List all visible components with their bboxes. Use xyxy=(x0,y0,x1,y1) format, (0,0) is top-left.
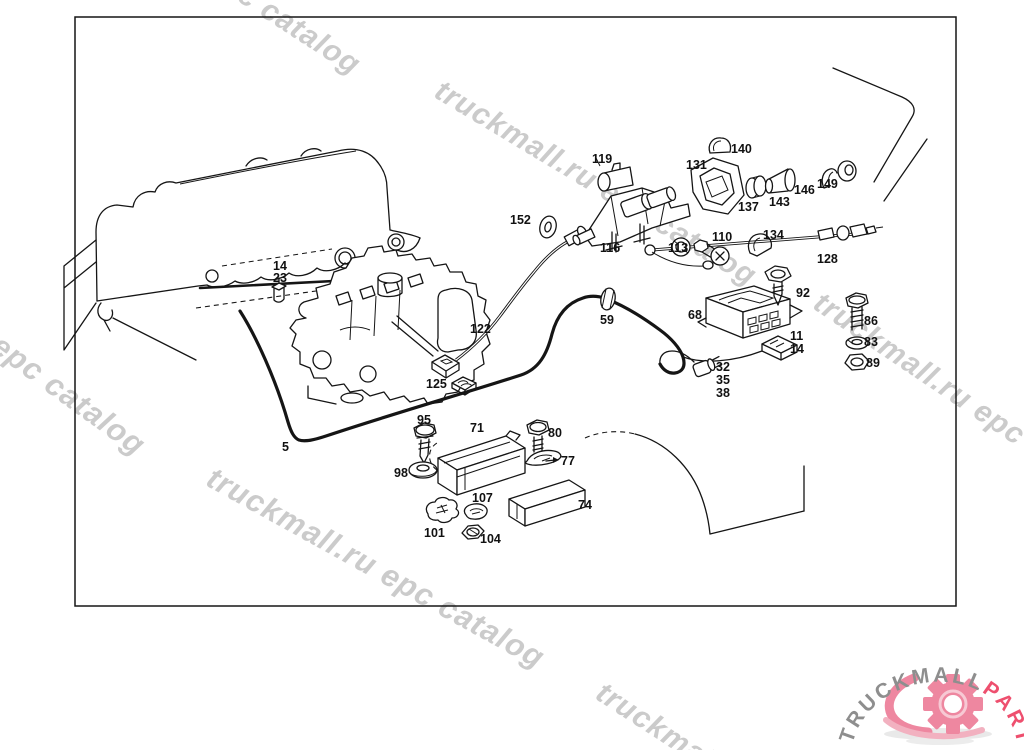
ring-149 xyxy=(838,161,856,181)
part-label-35: 35 xyxy=(716,373,730,387)
catalog-page: c catalogtruckmall.ru epc catalogtruckma… xyxy=(0,0,1024,750)
spring-nut-101 xyxy=(426,498,458,523)
bushing-137 xyxy=(746,176,766,198)
body-outline-fender xyxy=(585,432,804,534)
part-label-146: 146 xyxy=(794,183,815,197)
part-label-119: 119 xyxy=(592,152,612,166)
bolt-80 xyxy=(527,420,549,452)
box-74 xyxy=(509,480,585,526)
brand-logo: TRUCKMALLPARTS xyxy=(0,0,1024,748)
part-label-59: 59 xyxy=(600,313,614,327)
part-label-140: 140 xyxy=(731,142,752,156)
part-label-128: 128 xyxy=(817,252,838,266)
part-label-149: 149 xyxy=(817,177,838,191)
logo-text-parts: PARTS xyxy=(0,0,1024,747)
part-label-116: 116 xyxy=(600,241,620,255)
relay-68 xyxy=(698,286,802,338)
part-label-5: 5 xyxy=(282,440,289,454)
part-label-74: 74 xyxy=(578,498,592,512)
part-label-107: 107 xyxy=(472,491,493,505)
part-label-83: 83 xyxy=(864,335,878,349)
part-label-131: 131 xyxy=(686,158,707,172)
part-label-122: 122 xyxy=(470,322,491,336)
part-label-98: 98 xyxy=(394,466,408,480)
clip-77 xyxy=(526,450,561,465)
part-label-125: 125 xyxy=(426,377,447,391)
part-label-77: 77 xyxy=(561,454,575,468)
part-label-86: 86 xyxy=(864,314,878,328)
part-label-71: 71 xyxy=(470,421,484,435)
part-label-143: 143 xyxy=(769,195,790,209)
parts-diagram: 1191401311371431461491521161131101341289… xyxy=(0,0,1024,750)
part-label-38: 38 xyxy=(716,386,730,400)
part-label-137: 137 xyxy=(738,200,759,214)
part-label-101: 101 xyxy=(424,526,445,540)
logo-text: TRUCKMALLPARTS xyxy=(0,0,1024,747)
screw-95 xyxy=(414,423,436,463)
part-label-68: 68 xyxy=(688,308,702,322)
bracket-71 xyxy=(430,431,526,495)
clip-107 xyxy=(464,504,487,519)
part-label-104: 104 xyxy=(480,532,501,546)
washer-98 xyxy=(409,462,437,478)
part-label-95: 95 xyxy=(417,413,431,427)
part-label-32: 32 xyxy=(716,360,730,374)
part-label-113: 113 xyxy=(668,241,688,255)
part-label-110: 110 xyxy=(712,230,732,244)
part-label-152: 152 xyxy=(510,213,531,227)
part-label-14: 14 xyxy=(790,342,804,356)
part-label-134: 134 xyxy=(763,228,784,242)
part-label-23: 23 xyxy=(273,271,287,285)
part-label-89: 89 xyxy=(866,356,880,370)
part-label-80: 80 xyxy=(548,426,562,440)
clip-140 xyxy=(709,138,730,153)
part-label-92: 92 xyxy=(796,286,810,300)
part-label-11: 11 xyxy=(790,329,803,343)
cone-143 xyxy=(766,169,796,193)
grommet-152 xyxy=(537,214,558,239)
grommet-59 xyxy=(599,287,617,311)
